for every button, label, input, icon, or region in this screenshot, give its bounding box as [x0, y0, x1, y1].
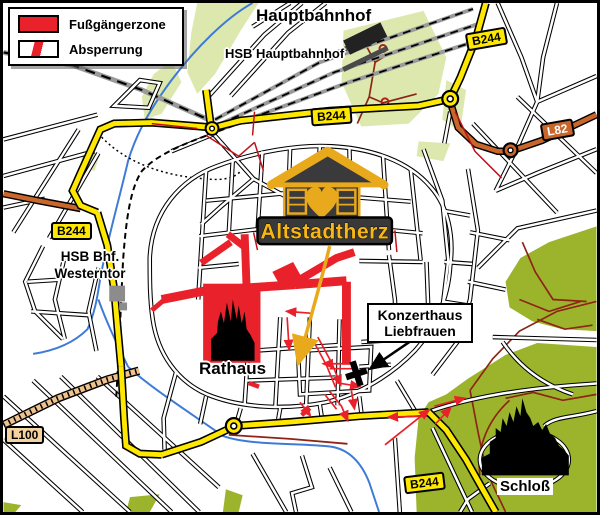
road-badge-b244-west: B244: [51, 222, 92, 240]
altstadtherz-locator-arrow: [300, 246, 330, 357]
road-badge-l100: L100: [5, 426, 44, 444]
window-right-icon: [338, 190, 356, 214]
label-konzerthaus: Konzerthaus Liebfrauen: [367, 303, 473, 343]
legend-label: Absperrung: [69, 42, 143, 57]
westerntor-station-building: [109, 286, 125, 302]
window-left-icon: [288, 190, 306, 214]
label-hsb-hauptbahnhof: HSB Hauptbahnhof: [225, 46, 344, 61]
city-map: Altstadtherz Hauptbahnhof HSB Hauptbahnh…: [0, 0, 600, 515]
altstadtherz-label: Altstadtherz: [260, 220, 389, 244]
barrier-swatch-icon: [18, 40, 59, 58]
label-hsb-westerntor: HSB Bhf. Westerntor: [37, 249, 143, 283]
label-hauptbahnhof: Hauptbahnhof: [256, 6, 371, 26]
legend-label: Fußgängerzone: [69, 17, 166, 32]
label-konzerthaus-line1: Konzerthaus: [372, 307, 468, 323]
label-konzerthaus-line2: Liebfrauen: [372, 323, 468, 339]
label-hsb-westerntor-line2: Westerntor: [37, 266, 143, 283]
label-hsb-westerntor-line1: HSB Bhf.: [37, 249, 143, 266]
legend-item-pedestrian-zone: Fußgängerzone: [18, 15, 174, 33]
label-schloss: Schloß: [497, 478, 553, 495]
legend-item-barrier: Absperrung: [18, 40, 174, 58]
map-legend: Fußgängerzone Absperrung: [8, 7, 184, 66]
pedestrian-zone-swatch-icon: [18, 15, 59, 33]
road-badge-b244-north: B244: [310, 106, 352, 127]
label-rathaus: Rathaus: [199, 359, 266, 379]
